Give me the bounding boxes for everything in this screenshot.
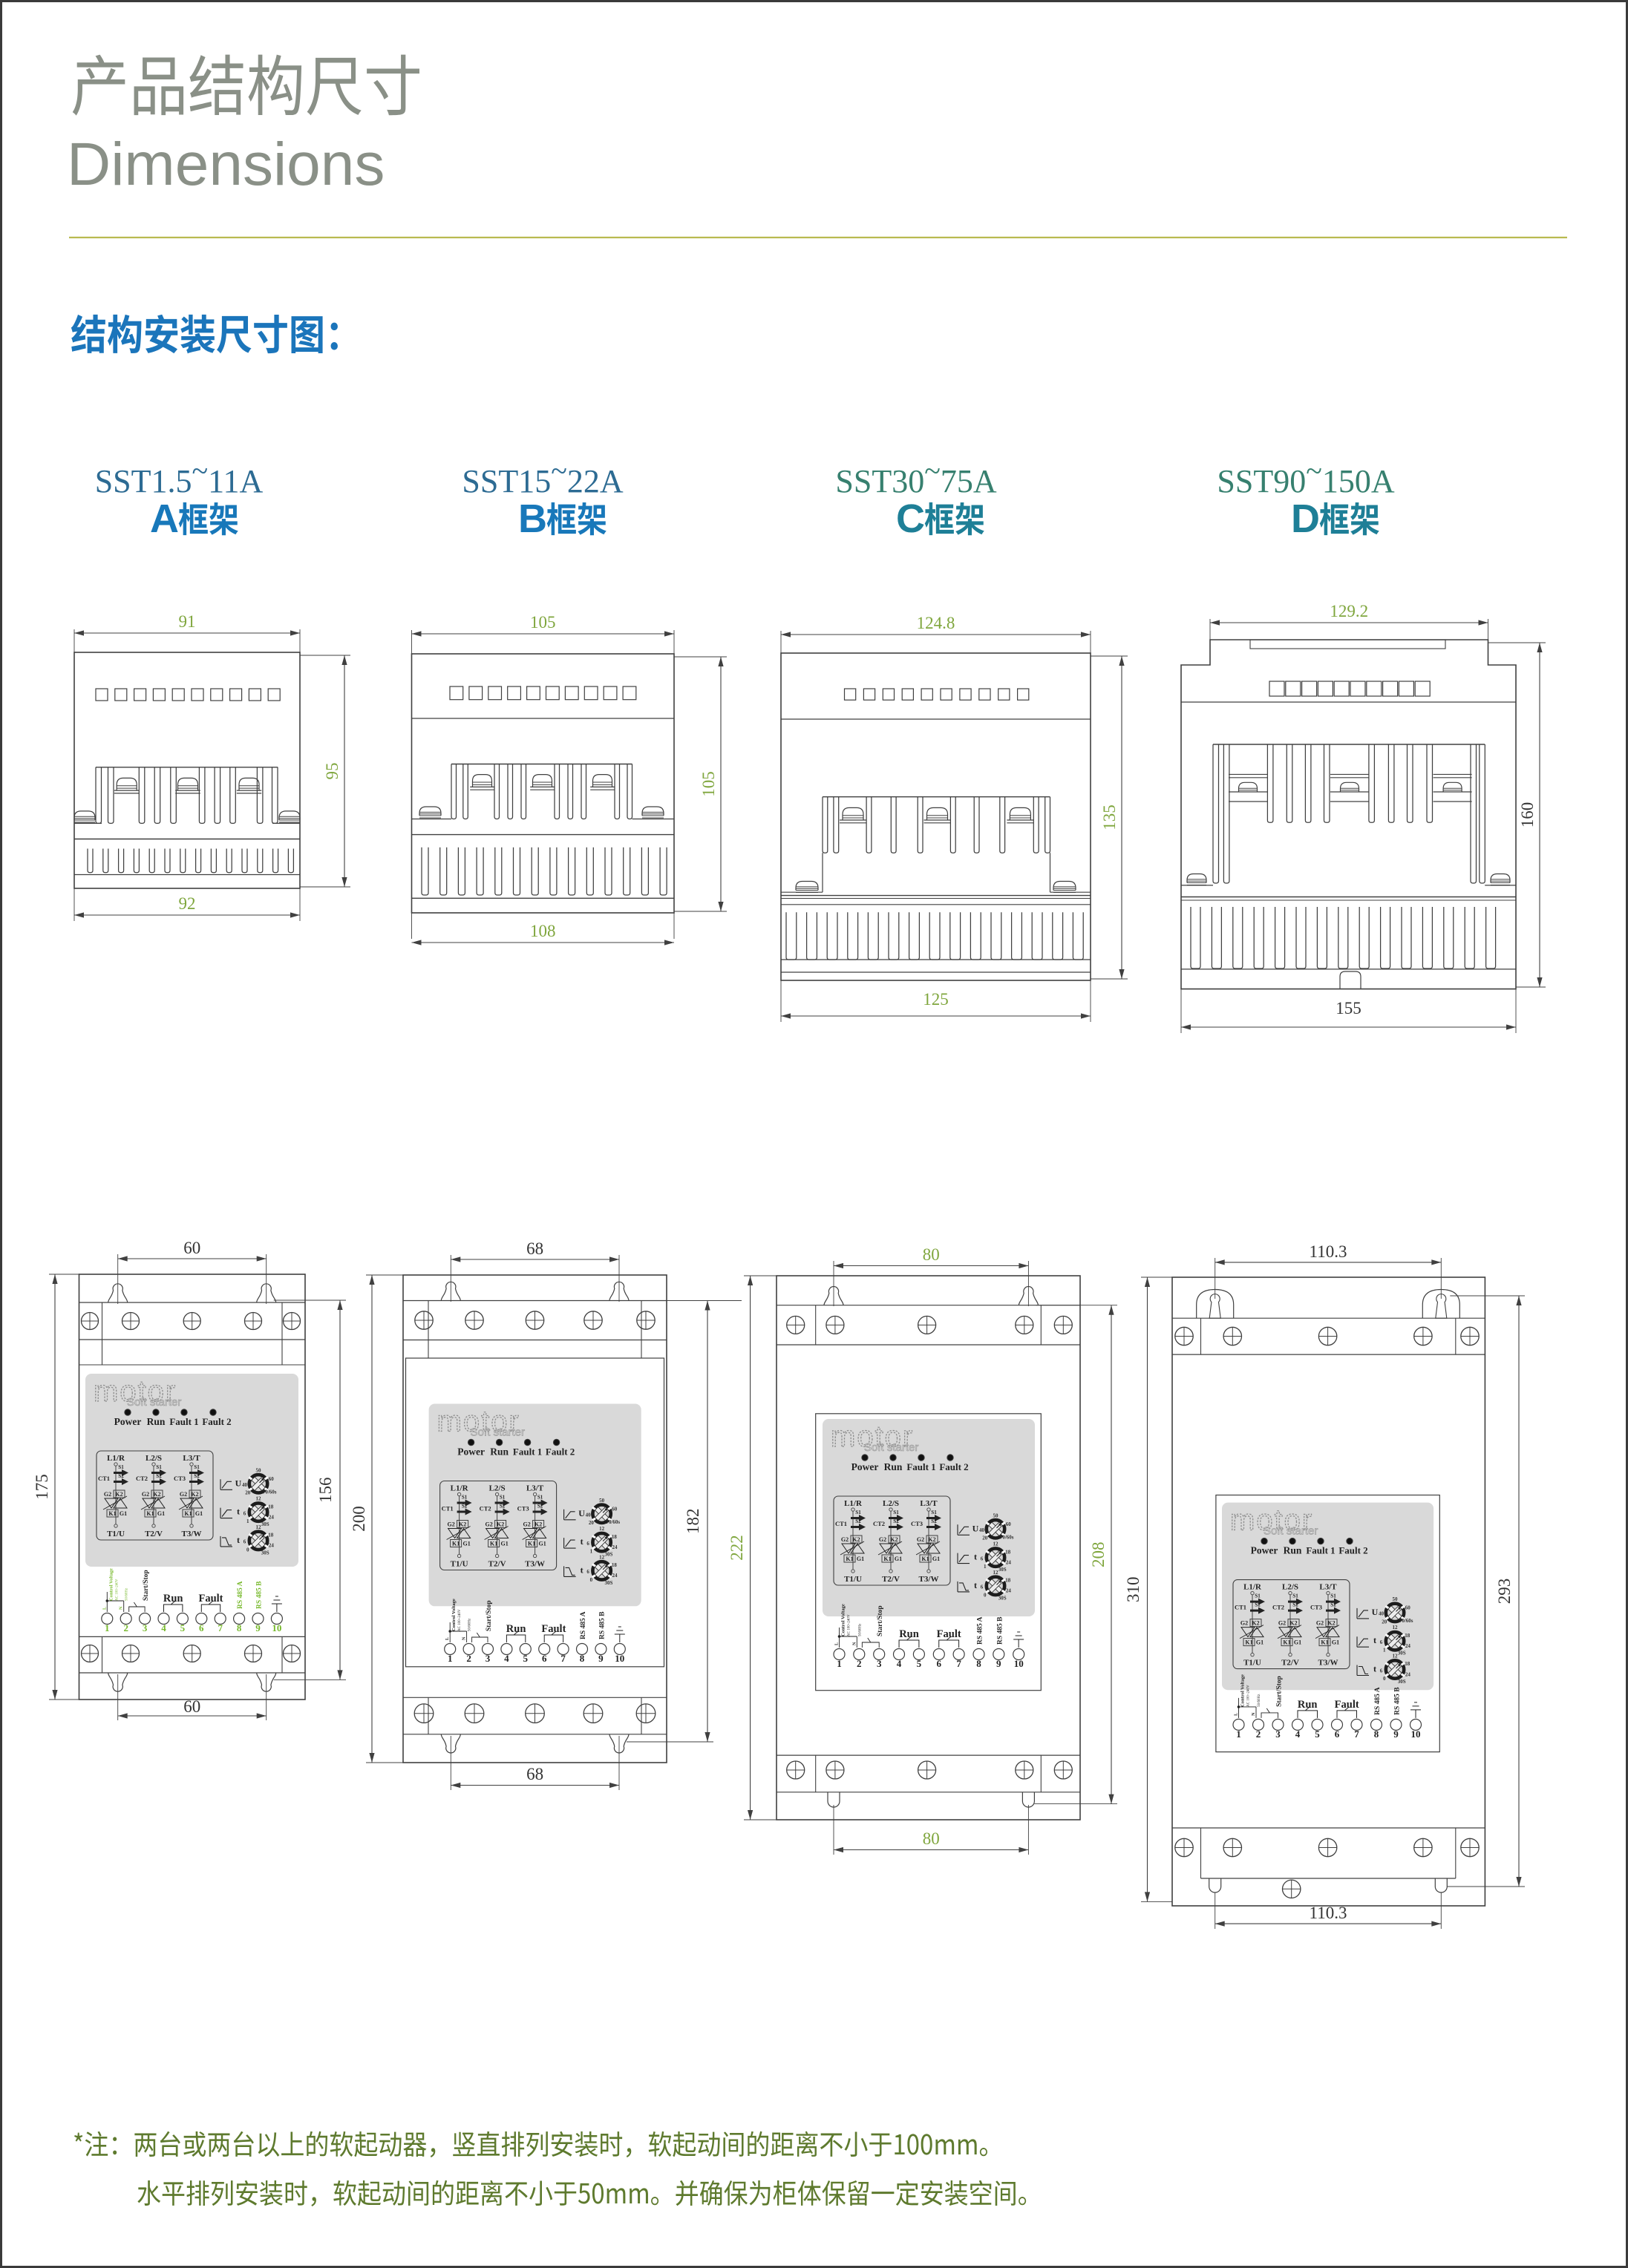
svg-text:1: 1 <box>837 1658 842 1669</box>
svg-text:K2: K2 <box>890 1536 898 1543</box>
svg-text:40: 40 <box>242 1482 248 1488</box>
svg-text:50: 50 <box>599 1498 605 1504</box>
svg-text:K2: K2 <box>497 1521 504 1528</box>
svg-text:L3/T: L3/T <box>1319 1583 1337 1592</box>
svg-text:CT3: CT3 <box>911 1520 923 1527</box>
svg-text:T2/V: T2/V <box>488 1560 506 1569</box>
svg-text:K2: K2 <box>191 1491 198 1498</box>
svg-text:S2: S2 <box>118 1473 124 1479</box>
svg-text:30S: 30S <box>998 1595 1007 1601</box>
svg-text:K2: K2 <box>1327 1620 1335 1627</box>
svg-text:4: 4 <box>1295 1728 1301 1740</box>
svg-text:S1: S1 <box>118 1464 124 1470</box>
svg-text:L1/R: L1/R <box>107 1454 125 1463</box>
svg-text:T1/U: T1/U <box>1243 1659 1261 1668</box>
svg-text:30S: 30S <box>998 1567 1007 1573</box>
svg-text:CT1: CT1 <box>98 1475 110 1482</box>
svg-text:6: 6 <box>243 1539 246 1545</box>
svg-text:20: 20 <box>982 1536 988 1541</box>
svg-text:30S: 30S <box>1398 1679 1406 1685</box>
svg-text:D: D <box>1291 496 1320 541</box>
svg-text:S1: S1 <box>893 1510 899 1515</box>
svg-text:50/60Hz: 50/60Hz <box>468 1618 472 1631</box>
svg-text:L: L <box>445 1637 450 1640</box>
svg-text:125: 125 <box>923 990 949 1009</box>
svg-text:t: t <box>1373 1664 1376 1674</box>
svg-text:12: 12 <box>1393 1654 1399 1659</box>
svg-text:G2: G2 <box>841 1536 849 1543</box>
svg-text:S1: S1 <box>194 1464 200 1470</box>
svg-text:Dimensions: Dimensions <box>67 131 385 198</box>
svg-text:K2: K2 <box>459 1521 466 1528</box>
svg-text:SST90~150A: SST90~150A <box>1217 454 1394 499</box>
svg-text:K2: K2 <box>852 1536 860 1543</box>
svg-text:K1: K1 <box>921 1556 929 1562</box>
svg-text:1: 1 <box>448 1653 453 1664</box>
svg-text:K1: K1 <box>883 1556 891 1562</box>
svg-text:30S: 30S <box>261 1550 269 1556</box>
svg-text:20: 20 <box>589 1520 595 1526</box>
svg-text:8: 8 <box>237 1622 242 1633</box>
svg-text:S2: S2 <box>893 1518 899 1524</box>
svg-text:8: 8 <box>1374 1728 1379 1740</box>
svg-text:110.3: 110.3 <box>1310 1242 1347 1261</box>
svg-text:G2: G2 <box>180 1491 187 1498</box>
svg-text:Run: Run <box>147 1416 166 1427</box>
svg-text:24: 24 <box>269 1543 275 1549</box>
svg-text:70/60s: 70/60s <box>606 1519 620 1525</box>
svg-text:L2/S: L2/S <box>489 1484 506 1493</box>
svg-text:208: 208 <box>1089 1541 1108 1567</box>
svg-text:105: 105 <box>699 771 718 797</box>
svg-text:24: 24 <box>269 1514 275 1520</box>
svg-text:S2: S2 <box>1255 1602 1261 1608</box>
svg-text:K2: K2 <box>115 1491 122 1498</box>
svg-text:L1/R: L1/R <box>451 1484 469 1493</box>
svg-text:RS 485 A: RS 485 A <box>237 1581 244 1609</box>
svg-text:18: 18 <box>268 1533 274 1538</box>
svg-text:T2/V: T2/V <box>145 1530 163 1538</box>
svg-text:N: N <box>462 1636 467 1640</box>
svg-text:K1: K1 <box>528 1541 535 1547</box>
svg-text:K1: K1 <box>1283 1639 1290 1646</box>
svg-text:N: N <box>120 1606 124 1610</box>
svg-text:Run: Run <box>490 1446 509 1458</box>
svg-text:Start/Stop: Start/Stop <box>486 1600 493 1631</box>
svg-text:G1: G1 <box>1332 1639 1339 1646</box>
svg-text:G2: G2 <box>1278 1620 1286 1627</box>
svg-text:3: 3 <box>486 1653 491 1664</box>
svg-text:Run: Run <box>1284 1545 1302 1556</box>
svg-text:S1: S1 <box>537 1495 543 1501</box>
svg-text:T1/U: T1/U <box>107 1530 125 1538</box>
svg-text:18: 18 <box>268 1504 274 1510</box>
svg-text:G2: G2 <box>917 1536 924 1543</box>
svg-text:310: 310 <box>1124 1576 1142 1602</box>
svg-text:60: 60 <box>612 1506 618 1512</box>
svg-text:K1: K1 <box>452 1541 460 1547</box>
svg-text:18: 18 <box>612 1562 618 1568</box>
svg-text:RS 485 A: RS 485 A <box>580 1611 587 1639</box>
svg-text:A: A <box>150 496 179 541</box>
svg-text:Fault 2: Fault 2 <box>939 1461 968 1472</box>
svg-text:Control Voltage: Control Voltage <box>451 1599 457 1631</box>
svg-text:L2/S: L2/S <box>1282 1583 1298 1592</box>
svg-text:1: 1 <box>246 1518 249 1524</box>
svg-text:80: 80 <box>923 1245 940 1264</box>
svg-text:K2: K2 <box>928 1536 935 1543</box>
svg-text:7: 7 <box>956 1658 961 1669</box>
svg-text:G1: G1 <box>195 1510 203 1517</box>
svg-text:t: t <box>974 1580 977 1590</box>
svg-text:Control Voltage: Control Voltage <box>841 1604 846 1636</box>
svg-text:N: N <box>1252 1712 1256 1716</box>
svg-text:7: 7 <box>1354 1728 1359 1740</box>
svg-text:L3/T: L3/T <box>526 1484 544 1493</box>
svg-text:200: 200 <box>350 1506 368 1532</box>
svg-text:5: 5 <box>917 1658 922 1669</box>
svg-text:0: 0 <box>1383 1676 1386 1682</box>
svg-text:S1: S1 <box>500 1495 506 1501</box>
svg-text:S1: S1 <box>1330 1593 1336 1599</box>
svg-text:7: 7 <box>560 1653 566 1664</box>
svg-text:Soft starter: Soft starter <box>1264 1525 1318 1538</box>
svg-text:1: 1 <box>984 1564 987 1570</box>
svg-text:6: 6 <box>981 1584 984 1590</box>
svg-text:5: 5 <box>1315 1728 1320 1740</box>
svg-text:60: 60 <box>1006 1521 1012 1527</box>
svg-text:1: 1 <box>590 1549 593 1555</box>
svg-text:70/60s: 70/60s <box>1000 1534 1014 1540</box>
svg-text:24: 24 <box>1405 1671 1411 1677</box>
svg-text:Power: Power <box>114 1416 142 1427</box>
svg-text:K2: K2 <box>153 1491 160 1498</box>
svg-text:AC 100~240V: AC 100~240V <box>458 1609 462 1631</box>
svg-text:40: 40 <box>979 1527 985 1533</box>
svg-text:7: 7 <box>218 1622 223 1633</box>
svg-text:CT2: CT2 <box>480 1505 491 1512</box>
svg-text:C: C <box>896 496 925 541</box>
svg-text:9: 9 <box>598 1653 604 1664</box>
svg-text:G1: G1 <box>895 1556 902 1562</box>
svg-text:24: 24 <box>1006 1588 1012 1594</box>
svg-text:156: 156 <box>316 1477 335 1503</box>
svg-text:20: 20 <box>1382 1619 1387 1625</box>
svg-text:40: 40 <box>1379 1611 1385 1617</box>
svg-text:S1: S1 <box>855 1510 861 1515</box>
svg-text:12: 12 <box>1393 1625 1399 1630</box>
svg-text:12: 12 <box>256 1524 262 1530</box>
svg-text:0: 0 <box>246 1547 249 1553</box>
svg-text:Soft starter: Soft starter <box>127 1396 181 1409</box>
svg-text:293: 293 <box>1495 1579 1514 1605</box>
svg-text:12: 12 <box>256 1496 262 1502</box>
svg-text:Soft starter: Soft starter <box>864 1441 918 1454</box>
svg-text:T3/W: T3/W <box>182 1530 202 1538</box>
svg-text:T3/W: T3/W <box>919 1575 939 1584</box>
svg-text:RS 485 B: RS 485 B <box>256 1581 264 1609</box>
svg-text:CT1: CT1 <box>835 1520 847 1527</box>
svg-text:6: 6 <box>542 1653 547 1664</box>
svg-text:CT2: CT2 <box>873 1520 885 1527</box>
svg-text:6: 6 <box>243 1510 246 1516</box>
svg-text:S2: S2 <box>931 1518 937 1524</box>
svg-text:L3/T: L3/T <box>183 1454 200 1463</box>
svg-text:1: 1 <box>1236 1728 1241 1740</box>
svg-text:G2: G2 <box>1240 1620 1248 1627</box>
svg-text:6: 6 <box>1335 1728 1340 1740</box>
svg-text:24: 24 <box>612 1573 618 1579</box>
svg-text:T1/U: T1/U <box>451 1560 468 1569</box>
svg-text:S1: S1 <box>1255 1593 1261 1599</box>
svg-text:K1: K1 <box>108 1510 116 1517</box>
svg-text:9: 9 <box>1393 1728 1399 1740</box>
svg-text:S2: S2 <box>462 1504 468 1510</box>
svg-text:G1: G1 <box>538 1541 546 1547</box>
svg-text:30S: 30S <box>604 1580 612 1586</box>
svg-text:60: 60 <box>1405 1605 1411 1611</box>
svg-text:CT2: CT2 <box>1272 1604 1284 1611</box>
svg-text:U: U <box>1372 1607 1379 1617</box>
svg-text:U: U <box>578 1508 585 1518</box>
svg-text:50: 50 <box>1393 1596 1399 1602</box>
svg-text:129.2: 129.2 <box>1330 602 1368 620</box>
svg-text:50/60Hz: 50/60Hz <box>858 1623 862 1636</box>
svg-text:Fault 1: Fault 1 <box>513 1446 542 1458</box>
svg-text:t: t <box>1373 1635 1376 1645</box>
svg-text:175: 175 <box>33 1474 51 1500</box>
svg-text:RS 485 A: RS 485 A <box>1374 1687 1382 1715</box>
svg-text:155: 155 <box>1336 999 1361 1017</box>
svg-text:40: 40 <box>586 1512 592 1518</box>
svg-text:t: t <box>237 1507 240 1517</box>
svg-text:Control Voltage: Control Voltage <box>1240 1674 1246 1707</box>
svg-text:S1: S1 <box>931 1510 937 1515</box>
svg-text:G1: G1 <box>500 1541 508 1547</box>
svg-text:3: 3 <box>1275 1728 1281 1740</box>
svg-text:50: 50 <box>993 1512 999 1518</box>
svg-text:68: 68 <box>526 1239 543 1258</box>
svg-text:G2: G2 <box>104 1491 111 1498</box>
svg-text:6: 6 <box>199 1622 204 1633</box>
svg-text:SST1.5~11A: SST1.5~11A <box>95 454 264 499</box>
svg-text:S2: S2 <box>855 1518 861 1524</box>
svg-text:K2: K2 <box>1289 1620 1297 1627</box>
svg-text:Run: Run <box>884 1461 903 1472</box>
svg-text:30S: 30S <box>261 1521 269 1527</box>
svg-text:G1: G1 <box>120 1510 127 1517</box>
svg-text:CT2: CT2 <box>136 1475 148 1482</box>
svg-text:S2: S2 <box>194 1473 200 1479</box>
svg-text:30S: 30S <box>1398 1651 1406 1656</box>
svg-text:Control Voltage: Control Voltage <box>108 1568 114 1601</box>
svg-text:L1/R: L1/R <box>844 1499 863 1508</box>
svg-text:10: 10 <box>1014 1658 1024 1669</box>
svg-text:K1: K1 <box>846 1556 853 1562</box>
svg-text:SST30~75A: SST30~75A <box>835 454 996 499</box>
svg-text:Start/Stop: Start/Stop <box>1276 1676 1284 1707</box>
svg-text:60: 60 <box>269 1476 275 1482</box>
svg-text:RS 485 B: RS 485 B <box>996 1616 1004 1645</box>
svg-text:95: 95 <box>323 763 341 780</box>
svg-text:AC 100~240V: AC 100~240V <box>115 1579 119 1601</box>
svg-text:3: 3 <box>143 1622 148 1633</box>
svg-text:8: 8 <box>976 1658 981 1669</box>
svg-text:T1/U: T1/U <box>844 1575 862 1584</box>
svg-text:S2: S2 <box>500 1504 506 1510</box>
svg-text:S1: S1 <box>1292 1593 1298 1599</box>
svg-text:K1: K1 <box>146 1510 154 1517</box>
svg-text:10: 10 <box>615 1653 624 1664</box>
svg-text:L1/R: L1/R <box>1243 1583 1262 1592</box>
svg-text:Power: Power <box>1251 1545 1278 1556</box>
svg-text:4: 4 <box>504 1653 509 1664</box>
svg-text:91: 91 <box>179 612 196 631</box>
svg-text:182: 182 <box>684 1509 702 1535</box>
svg-text:L: L <box>102 1607 107 1610</box>
svg-text:T3/W: T3/W <box>525 1560 545 1569</box>
svg-text:AC 100~240V: AC 100~240V <box>848 1614 851 1636</box>
svg-text:Start/Stop: Start/Stop <box>877 1605 884 1636</box>
svg-text:CT3: CT3 <box>1310 1604 1322 1611</box>
svg-text:t: t <box>581 1564 583 1575</box>
svg-text:Fault 1: Fault 1 <box>1306 1545 1335 1556</box>
svg-text:12: 12 <box>993 1541 999 1547</box>
svg-text:Power: Power <box>851 1461 879 1472</box>
svg-text:G2: G2 <box>447 1521 454 1528</box>
svg-text:4: 4 <box>161 1622 166 1633</box>
svg-text:G1: G1 <box>857 1556 864 1562</box>
svg-text:9: 9 <box>255 1622 261 1633</box>
svg-text:G1: G1 <box>932 1556 940 1562</box>
svg-text:50/60Hz: 50/60Hz <box>1258 1694 1261 1707</box>
svg-text:K2: K2 <box>1252 1620 1259 1627</box>
svg-text:24: 24 <box>612 1544 618 1550</box>
svg-text:2: 2 <box>1256 1728 1261 1740</box>
svg-text:160: 160 <box>1518 802 1537 828</box>
svg-text:6: 6 <box>586 1541 589 1547</box>
svg-text:2: 2 <box>857 1658 862 1669</box>
svg-text:S2: S2 <box>1292 1602 1298 1608</box>
svg-text:124.8: 124.8 <box>917 614 955 632</box>
svg-text:AC 100~240V: AC 100~240V <box>1247 1685 1251 1707</box>
svg-text:t: t <box>974 1552 977 1562</box>
svg-text:G2: G2 <box>879 1536 886 1543</box>
svg-text:S1: S1 <box>156 1464 162 1470</box>
svg-text:L2/S: L2/S <box>883 1499 899 1508</box>
svg-text:0: 0 <box>590 1577 593 1583</box>
svg-text:G1: G1 <box>462 1541 470 1547</box>
svg-text:Start/Stop: Start/Stop <box>143 1570 150 1601</box>
svg-text:U: U <box>972 1523 979 1533</box>
svg-text:110.3: 110.3 <box>1310 1904 1347 1922</box>
svg-text:10: 10 <box>1411 1728 1421 1740</box>
svg-text:20: 20 <box>245 1490 251 1496</box>
svg-text:18: 18 <box>1405 1633 1410 1639</box>
svg-text:68: 68 <box>526 1765 543 1783</box>
svg-text:S2: S2 <box>156 1473 162 1479</box>
svg-text:92: 92 <box>179 894 196 913</box>
svg-text:24: 24 <box>1006 1559 1012 1565</box>
svg-text:L3/T: L3/T <box>920 1499 938 1508</box>
svg-text:222: 222 <box>728 1535 746 1561</box>
svg-text:1: 1 <box>1383 1648 1386 1654</box>
svg-text:18: 18 <box>1005 1578 1011 1584</box>
svg-text:B: B <box>518 496 547 541</box>
svg-text:70/60s: 70/60s <box>1399 1618 1413 1624</box>
svg-text:G1: G1 <box>157 1510 165 1517</box>
svg-text:5: 5 <box>523 1653 529 1664</box>
svg-text:CT3: CT3 <box>517 1505 529 1512</box>
svg-text:2: 2 <box>466 1653 471 1664</box>
svg-text:T3/W: T3/W <box>1318 1659 1338 1668</box>
svg-text:RS 485 B: RS 485 B <box>1394 1687 1402 1715</box>
svg-text:Soft starter: Soft starter <box>471 1426 525 1439</box>
svg-text:2: 2 <box>123 1622 128 1633</box>
svg-text:60: 60 <box>183 1697 200 1716</box>
svg-text:18: 18 <box>1405 1661 1410 1667</box>
svg-text:S2: S2 <box>1330 1602 1336 1608</box>
svg-text:18: 18 <box>612 1534 618 1540</box>
svg-text:18: 18 <box>1005 1549 1011 1555</box>
svg-text:t: t <box>237 1535 240 1545</box>
svg-text:L: L <box>1235 1713 1239 1716</box>
svg-text:RS 485 B: RS 485 B <box>598 1611 606 1639</box>
svg-text:12: 12 <box>993 1570 999 1576</box>
svg-text:N: N <box>852 1642 857 1645</box>
svg-text:6: 6 <box>1380 1668 1383 1674</box>
svg-text:G1: G1 <box>1294 1639 1301 1646</box>
svg-text:Power: Power <box>457 1446 485 1458</box>
svg-text:Fault 2: Fault 2 <box>202 1416 231 1427</box>
svg-text:30S: 30S <box>604 1552 612 1558</box>
svg-text:70/60s: 70/60s <box>263 1489 277 1495</box>
svg-text:3: 3 <box>877 1658 882 1669</box>
svg-text:G2: G2 <box>485 1521 492 1528</box>
svg-text:T2/V: T2/V <box>1281 1659 1299 1668</box>
svg-text:CT3: CT3 <box>174 1475 186 1482</box>
svg-text:SST15~22A: SST15~22A <box>462 454 623 499</box>
svg-text:6: 6 <box>586 1569 589 1575</box>
svg-text:24: 24 <box>1405 1643 1411 1649</box>
svg-text:Fault 2: Fault 2 <box>546 1446 575 1458</box>
svg-text:105: 105 <box>530 613 556 632</box>
svg-text:108: 108 <box>530 922 556 940</box>
svg-text:CT1: CT1 <box>442 1505 454 1512</box>
svg-text:12: 12 <box>599 1526 605 1532</box>
svg-text:12: 12 <box>599 1554 605 1560</box>
svg-text:Fault 1: Fault 1 <box>169 1416 198 1427</box>
svg-text:T2/V: T2/V <box>882 1575 900 1584</box>
svg-text:G2: G2 <box>1316 1620 1324 1627</box>
svg-text:6: 6 <box>981 1556 984 1561</box>
svg-text:Fault 1: Fault 1 <box>906 1461 935 1472</box>
svg-text:G1: G1 <box>1256 1639 1264 1646</box>
svg-text:50/60Hz: 50/60Hz <box>125 1587 129 1601</box>
svg-text:8: 8 <box>580 1653 585 1664</box>
svg-text:K1: K1 <box>184 1510 192 1517</box>
svg-text:1: 1 <box>105 1622 110 1633</box>
svg-text:135: 135 <box>1100 804 1119 830</box>
svg-text:9: 9 <box>996 1658 1001 1669</box>
svg-text:U: U <box>235 1478 242 1488</box>
svg-text:Fault 2: Fault 2 <box>1338 1545 1367 1556</box>
svg-text:K1: K1 <box>490 1541 497 1547</box>
svg-text:S2: S2 <box>537 1504 543 1510</box>
svg-text:t: t <box>581 1536 583 1547</box>
svg-text:0: 0 <box>984 1592 987 1598</box>
svg-text:K1: K1 <box>1245 1639 1252 1646</box>
